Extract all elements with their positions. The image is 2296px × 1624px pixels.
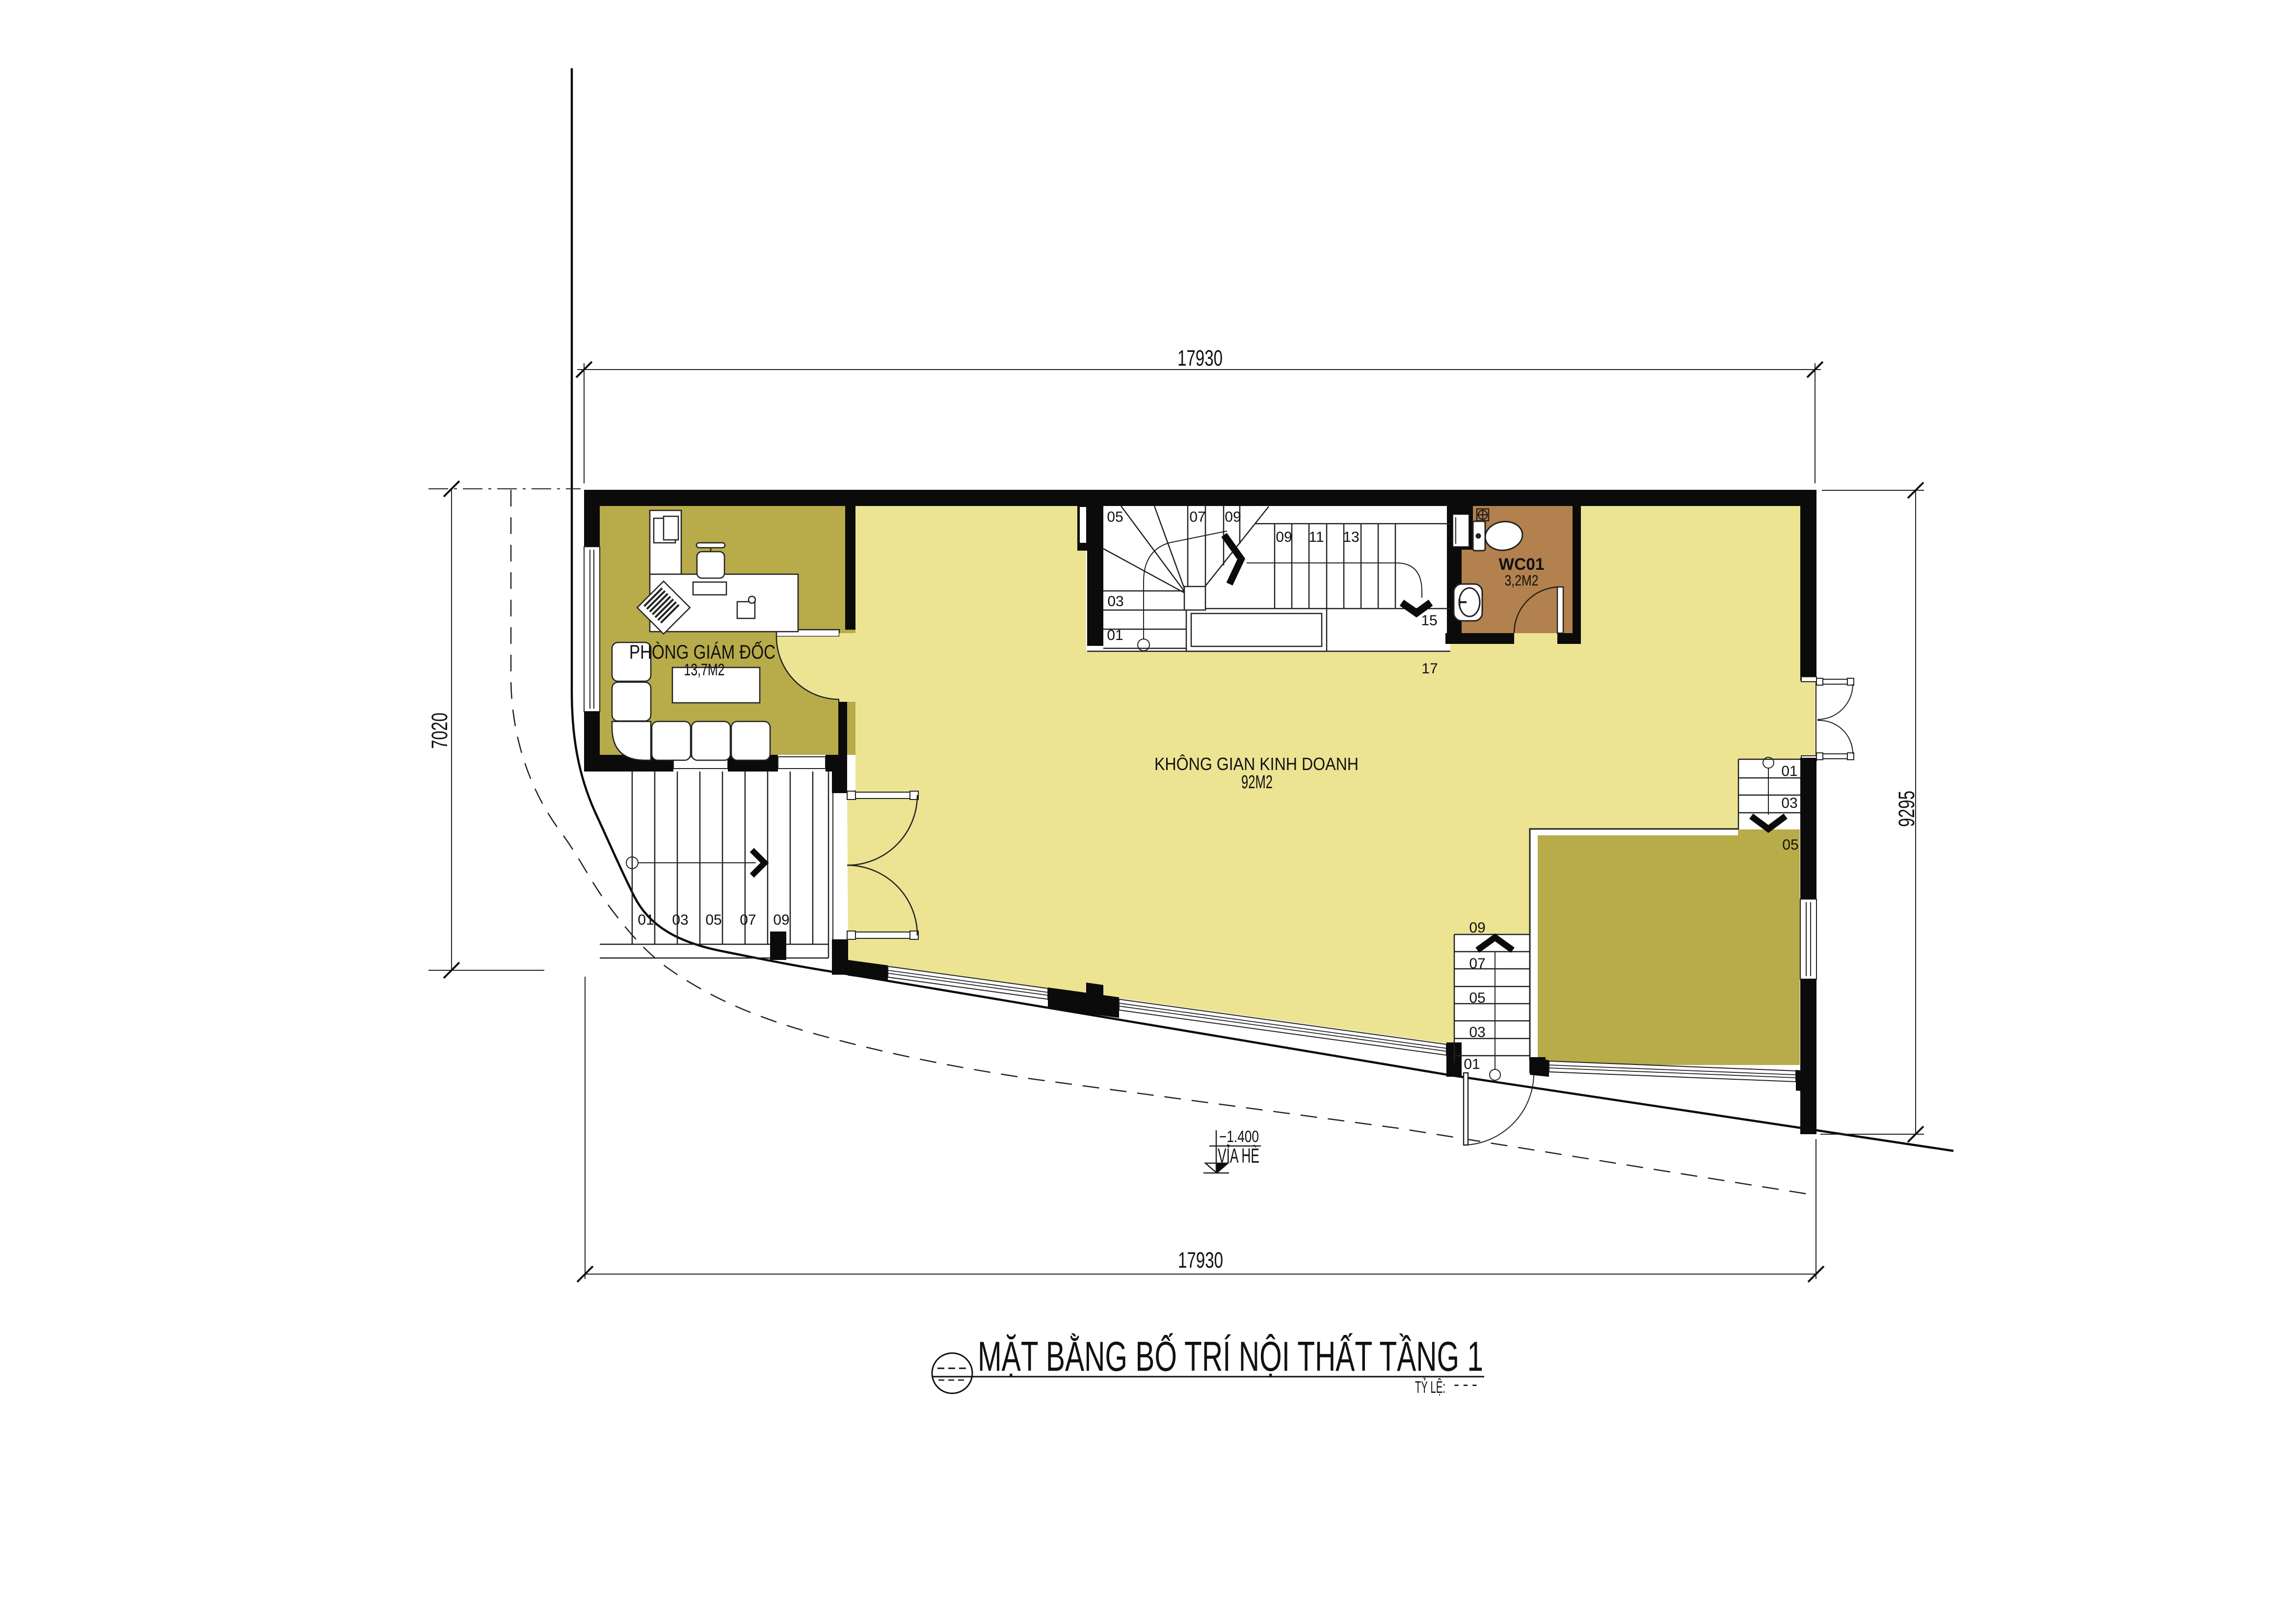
svg-text:13,7M2: 13,7M2: [684, 661, 725, 679]
svg-text:09: 09: [1469, 920, 1485, 936]
svg-text:09: 09: [1276, 529, 1292, 545]
svg-text:---: ---: [1454, 1375, 1477, 1394]
svg-text:WC01: WC01: [1499, 555, 1545, 574]
svg-text:01: 01: [638, 912, 654, 928]
svg-text:05: 05: [705, 912, 721, 928]
svg-text:7020: 7020: [427, 713, 452, 749]
svg-text:03: 03: [1781, 795, 1797, 811]
svg-text:01: 01: [1107, 627, 1123, 643]
svg-text:17: 17: [1421, 661, 1438, 677]
svg-text:07: 07: [1189, 509, 1205, 525]
svg-text:15: 15: [1421, 612, 1437, 629]
svg-text:01: 01: [1464, 1056, 1480, 1072]
svg-text:07: 07: [740, 912, 756, 928]
svg-text:17930: 17930: [1178, 1248, 1223, 1273]
svg-text:−1.400: −1.400: [1219, 1127, 1259, 1145]
svg-text:17930: 17930: [1177, 346, 1223, 371]
svg-text:TỶ LỆ:: TỶ LỆ:: [1415, 1378, 1445, 1397]
svg-text:03: 03: [1107, 593, 1123, 610]
svg-text:03: 03: [672, 912, 688, 928]
svg-text:11: 11: [1308, 529, 1324, 545]
svg-text:3,2M2: 3,2M2: [1505, 572, 1539, 589]
svg-text:9295: 9295: [1894, 791, 1919, 827]
svg-text:KHÔNG GIAN KINH DOANH: KHÔNG GIAN KINH DOANH: [1154, 754, 1359, 774]
svg-text:PHÒNG GIÁM ĐỐC: PHÒNG GIÁM ĐỐC: [629, 640, 775, 663]
svg-text:05: 05: [1107, 509, 1123, 525]
svg-text:03: 03: [1469, 1024, 1485, 1040]
svg-text:VỈA HÈ: VỈA HÈ: [1218, 1144, 1259, 1167]
svg-text:05: 05: [1469, 990, 1485, 1006]
svg-text:MẶT BẰNG BỐ TRÍ NỘI THẤT TẦNG: MẶT BẰNG BỐ TRÍ NỘI THẤT TẦNG 1: [978, 1333, 1483, 1380]
svg-text:07: 07: [1469, 956, 1485, 972]
svg-text:92M2: 92M2: [1241, 772, 1273, 793]
svg-text:09: 09: [773, 912, 789, 928]
svg-text:13: 13: [1343, 529, 1359, 545]
svg-text:05: 05: [1782, 837, 1798, 853]
svg-text:01: 01: [1781, 763, 1797, 779]
svg-text:09: 09: [1225, 509, 1241, 525]
